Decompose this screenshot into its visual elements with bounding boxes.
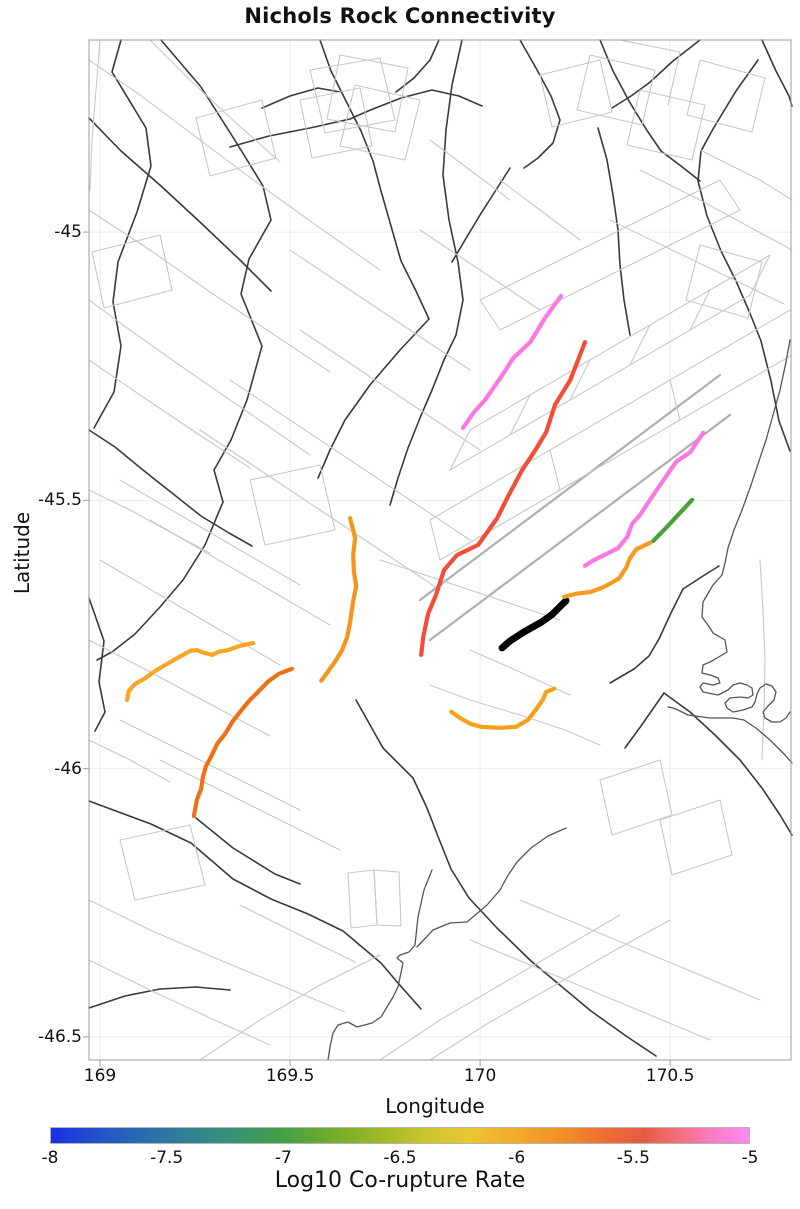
- minor-light-trace: [500, 210, 740, 330]
- minor-light-trace: [470, 940, 710, 1040]
- north-pink-trace: [463, 296, 561, 428]
- coastline-trace: [700, 563, 790, 722]
- minor-light-trace: [200, 430, 440, 590]
- colorbar-tick-label: -7.5: [150, 1148, 183, 1168]
- coastline-trace: [668, 707, 792, 763]
- axis-tick-marks: [83, 232, 670, 1066]
- minor-light-trace: [348, 870, 377, 928]
- x-tick-label: 169: [84, 1066, 116, 1086]
- major-dark-trace: [320, 40, 429, 319]
- major-dark-trace: [318, 319, 429, 478]
- y-tick-label: -45.5: [22, 490, 82, 510]
- coastline-trace: [328, 870, 432, 1060]
- middle-orange-trace: [321, 518, 356, 681]
- southwest-orangered-trace: [194, 669, 292, 816]
- south-orange-trace: [451, 689, 554, 728]
- x-axis-label: Longitude: [135, 1094, 735, 1118]
- east-green-trace: [653, 500, 692, 541]
- x-tick-label: 169.5: [266, 1066, 315, 1086]
- colorbar-tick-label: -5.5: [617, 1148, 650, 1168]
- minor-light-trace: [230, 380, 470, 540]
- minor-light-trace: [327, 55, 408, 132]
- coastline-trace: [417, 828, 566, 947]
- y-tick-label: -46: [22, 759, 82, 779]
- medium-gray-trace: [430, 415, 730, 640]
- figure: Nichols Rock Connectivity Latitude Longi…: [0, 0, 800, 1209]
- minor-light-trace: [577, 55, 655, 125]
- map-plot: [0, 0, 800, 1209]
- target-section: [502, 601, 566, 648]
- minor-light-trace: [550, 450, 560, 490]
- minor-light-trace: [620, 40, 680, 105]
- minor-light-trace: [300, 88, 372, 158]
- major-dark-trace: [89, 987, 230, 1008]
- major-dark-trace: [396, 40, 439, 92]
- major-dark-trace: [390, 360, 444, 505]
- coastline-trace: [725, 340, 790, 563]
- minor-light-trace: [290, 250, 470, 370]
- colorbar-tick-label: -6: [508, 1148, 525, 1168]
- major-dark-trace: [664, 693, 792, 835]
- minor-light-trace: [120, 825, 205, 900]
- colorbar-tick-label: -5: [742, 1148, 759, 1168]
- minor-light-trace: [700, 150, 792, 200]
- colorbar-tick-label: -7: [275, 1148, 292, 1168]
- minor-light-trace: [540, 60, 612, 127]
- major-dark-trace: [612, 40, 700, 108]
- medium-gray-trace: [420, 375, 720, 600]
- major-dark-trace: [161, 40, 271, 502]
- colorbar-tick-label: -6.5: [383, 1148, 416, 1168]
- minor-light-trace: [250, 465, 335, 545]
- major-dark-trace: [625, 693, 664, 748]
- minor-light-trace: [480, 300, 500, 330]
- minor-light-trace: [720, 180, 740, 210]
- colorbar: [50, 1127, 750, 1144]
- minor-light-trace: [760, 560, 765, 760]
- y-tick-label: -46.5: [22, 1027, 82, 1047]
- minor-light-trace: [480, 180, 720, 300]
- minor-light-trace: [374, 870, 401, 926]
- minor-light-trace: [89, 300, 310, 455]
- east-orange-trace: [564, 543, 650, 597]
- minor-light-trace: [89, 960, 270, 1045]
- major-dark-trace: [230, 90, 482, 147]
- y-tick-label: -45: [22, 222, 82, 242]
- minor-light-trace: [430, 920, 670, 1060]
- major-dark-trace: [443, 40, 463, 360]
- minor-light-trace: [92, 235, 172, 308]
- major-dark-trace: [89, 801, 421, 1009]
- colorbar-label: Log10 Co-rupture Rate: [100, 1168, 700, 1193]
- minor-light-trace: [300, 330, 480, 450]
- minor-light-trace: [240, 905, 355, 962]
- major-dark-trace: [598, 128, 630, 335]
- background-fault-network: [89, 40, 792, 1060]
- major-dark-trace: [762, 40, 792, 106]
- major-dark-trace: [196, 818, 300, 884]
- major-dark-trace: [698, 60, 790, 451]
- minor-light-trace: [670, 380, 680, 420]
- minor-light-trace: [89, 740, 170, 782]
- major-dark-trace: [89, 598, 105, 731]
- minor-light-trace: [120, 720, 300, 810]
- minor-light-trace: [430, 310, 790, 520]
- major-dark-trace: [452, 168, 510, 262]
- minor-light-trace: [430, 140, 510, 200]
- x-tick-label: 170.5: [646, 1066, 695, 1086]
- major-dark-trace: [520, 40, 560, 168]
- colorbar-tick-label: -8: [42, 1148, 59, 1168]
- minor-light-trace: [470, 255, 770, 430]
- minor-light-trace: [627, 90, 705, 160]
- minor-light-trace: [430, 520, 440, 560]
- minor-light-trace: [89, 210, 330, 372]
- highlighted-fault-traces: [127, 296, 703, 816]
- x-tick-label: 170: [464, 1066, 496, 1086]
- minor-light-trace: [120, 480, 300, 585]
- minor-light-trace: [500, 180, 580, 240]
- minor-light-trace: [90, 40, 100, 190]
- minor-light-trace: [160, 760, 340, 850]
- minor-light-trace: [150, 40, 280, 162]
- west-amber-trace: [127, 643, 253, 700]
- minor-light-trace: [687, 60, 765, 132]
- y-axis-label: Latitude: [10, 273, 34, 833]
- minor-light-trace: [89, 360, 250, 468]
